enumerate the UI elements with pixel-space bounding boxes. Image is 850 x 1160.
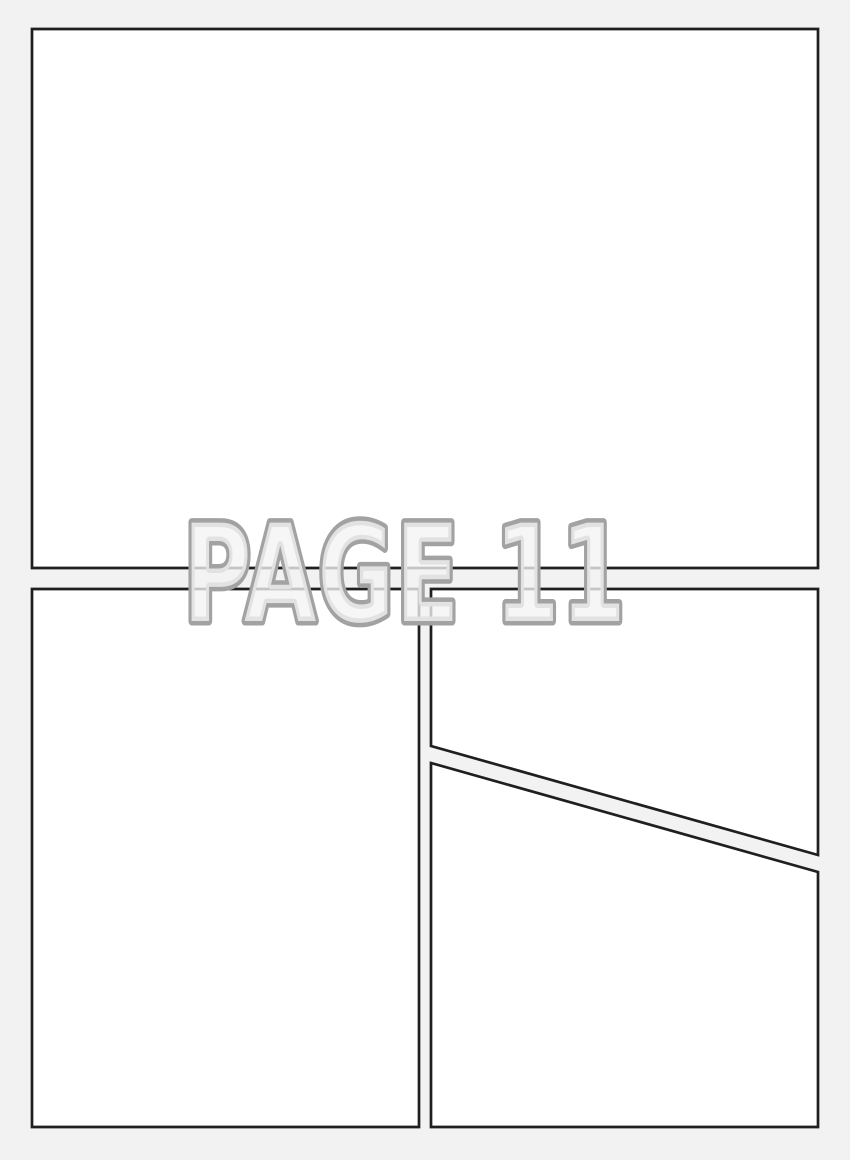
comic-page-template: PAGE 11 (0, 0, 850, 1160)
panel-top (32, 29, 818, 568)
comic-page-canvas: PAGE 11 (0, 0, 850, 1160)
page-number-label: PAGE 11 (183, 496, 627, 653)
panel-bottom-left (32, 589, 419, 1127)
